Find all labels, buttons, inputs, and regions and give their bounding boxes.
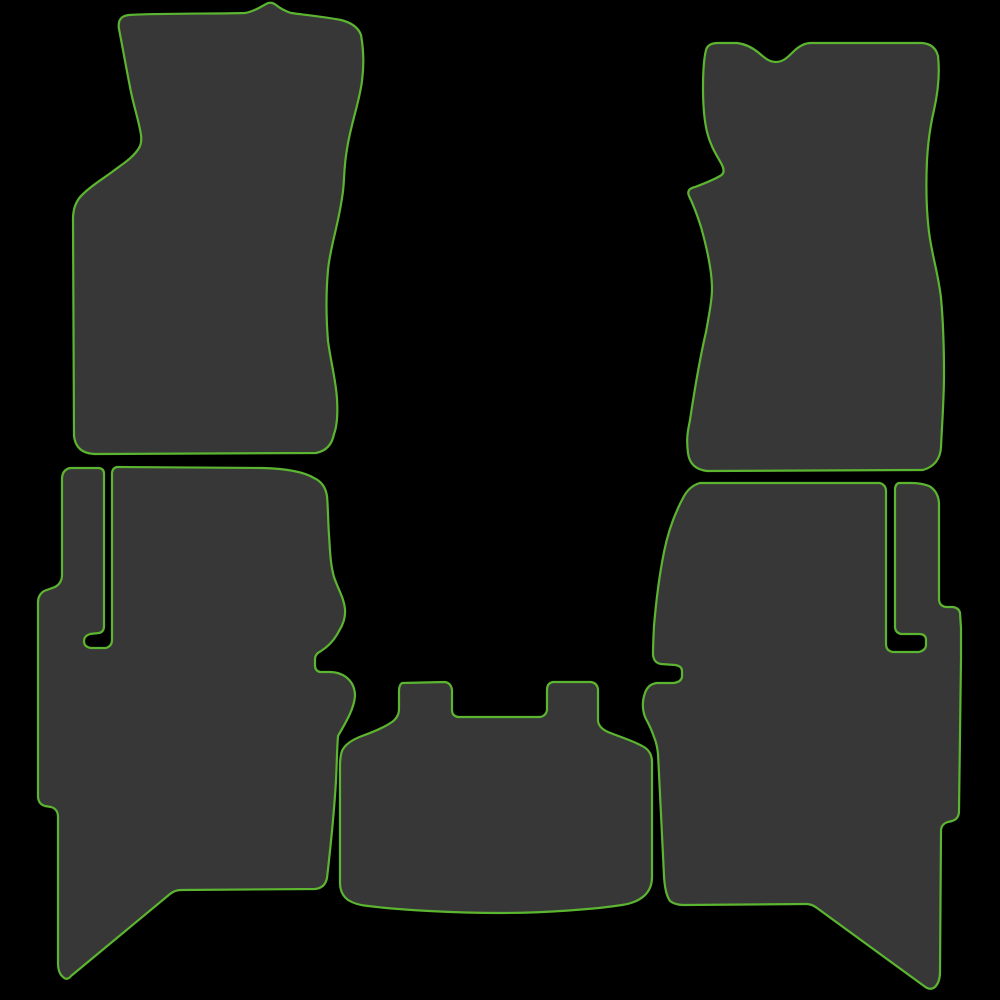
floor-mat-set-image: Five-piece tailored car floor mat set [0,0,1000,1000]
centre-tunnel-mat [340,682,652,913]
front-right-mat [687,43,944,471]
product-image-canvas: Five-piece tailored car floor mat set [0,0,1000,1000]
rear-right-mat [643,483,961,989]
front-left-mat [73,3,363,454]
rear-left-mat [38,467,355,979]
